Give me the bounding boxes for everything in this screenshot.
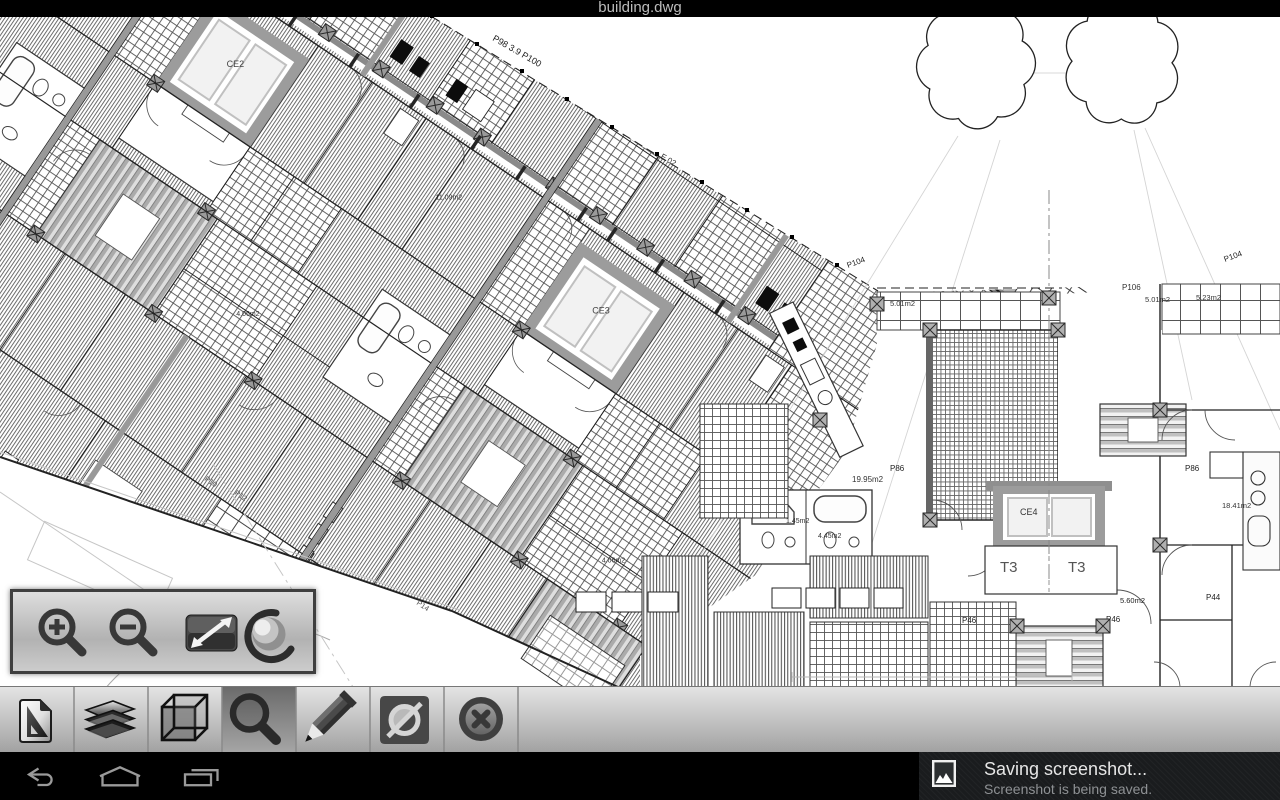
svg-text:4.45m2: 4.45m2 [818, 533, 841, 540]
svg-text:11.09m2: 11.09m2 [435, 195, 462, 202]
svg-text:P44: P44 [1206, 593, 1221, 602]
svg-text:5.23m2: 5.23m2 [1196, 293, 1221, 302]
svg-text:1.45m2: 1.45m2 [786, 518, 809, 525]
svg-text:CE2: CE2 [227, 59, 245, 69]
svg-text:P86: P86 [890, 464, 905, 473]
svg-text:P86: P86 [1185, 464, 1200, 473]
svg-text:T3: T3 [1068, 559, 1086, 576]
svg-text:CE3: CE3 [592, 306, 610, 316]
svg-text:T3: T3 [1000, 559, 1018, 576]
svg-text:19.95m2: 19.95m2 [852, 475, 884, 484]
svg-text:5.01m2: 5.01m2 [1145, 295, 1170, 304]
svg-text:P106: P106 [1122, 283, 1141, 292]
svg-text:P46: P46 [962, 616, 977, 625]
svg-text:18.41m2: 18.41m2 [1222, 501, 1251, 510]
svg-text:5.01m2: 5.01m2 [890, 299, 915, 308]
svg-text:5.60m2: 5.60m2 [1120, 596, 1145, 605]
svg-text:CE4: CE4 [1020, 507, 1038, 517]
